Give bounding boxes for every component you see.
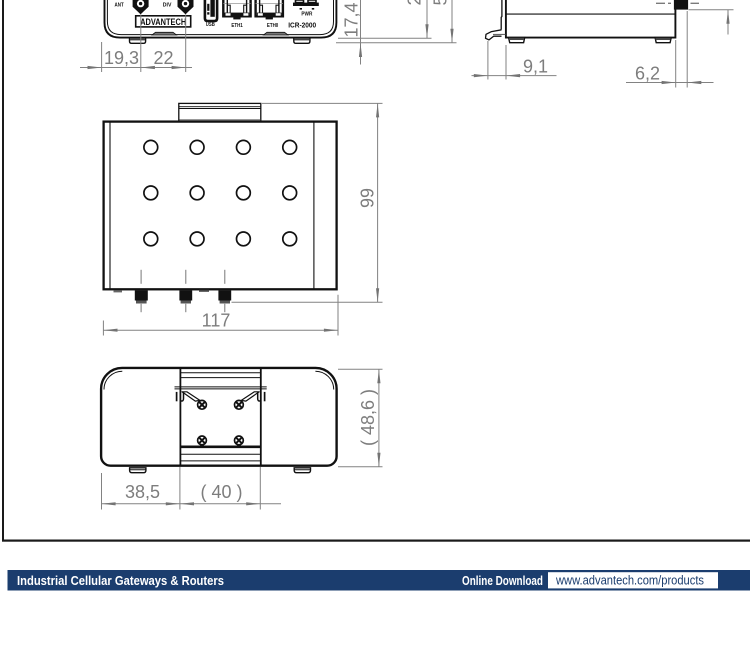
svg-text:38,5: 38,5 <box>125 482 160 502</box>
svg-text:17,4: 17,4 <box>342 2 362 37</box>
svg-text:ADVANTECH: ADVANTECH <box>140 17 186 27</box>
svg-text:19,3: 19,3 <box>104 48 139 68</box>
svg-text:9,1: 9,1 <box>523 56 548 76</box>
svg-text:Industrial Cellular Gateways &: Industrial Cellular Gateways & Routers <box>17 573 224 588</box>
svg-text:ETH0: ETH0 <box>267 23 278 29</box>
svg-text:5: 5 <box>431 0 451 6</box>
svg-text:www.advantech.com/products: www.advantech.com/products <box>555 574 704 588</box>
svg-text:2: 2 <box>405 0 425 6</box>
svg-text:( 40 ): ( 40 ) <box>200 482 242 502</box>
svg-text:PWR: PWR <box>301 12 312 18</box>
svg-text:ANT: ANT <box>115 2 125 8</box>
svg-text:22: 22 <box>153 48 173 68</box>
svg-text:99: 99 <box>358 188 378 208</box>
svg-text:117: 117 <box>202 310 231 330</box>
svg-text:( 48,6 ): ( 48,6 ) <box>358 389 378 446</box>
svg-text:ETH1: ETH1 <box>231 23 242 29</box>
svg-text:DIV: DIV <box>163 2 172 8</box>
svg-text:Online Download: Online Download <box>462 573 543 588</box>
svg-text:6,2: 6,2 <box>635 63 660 83</box>
svg-text:ICR-2000: ICR-2000 <box>288 20 316 29</box>
svg-text:USB: USB <box>206 22 215 28</box>
